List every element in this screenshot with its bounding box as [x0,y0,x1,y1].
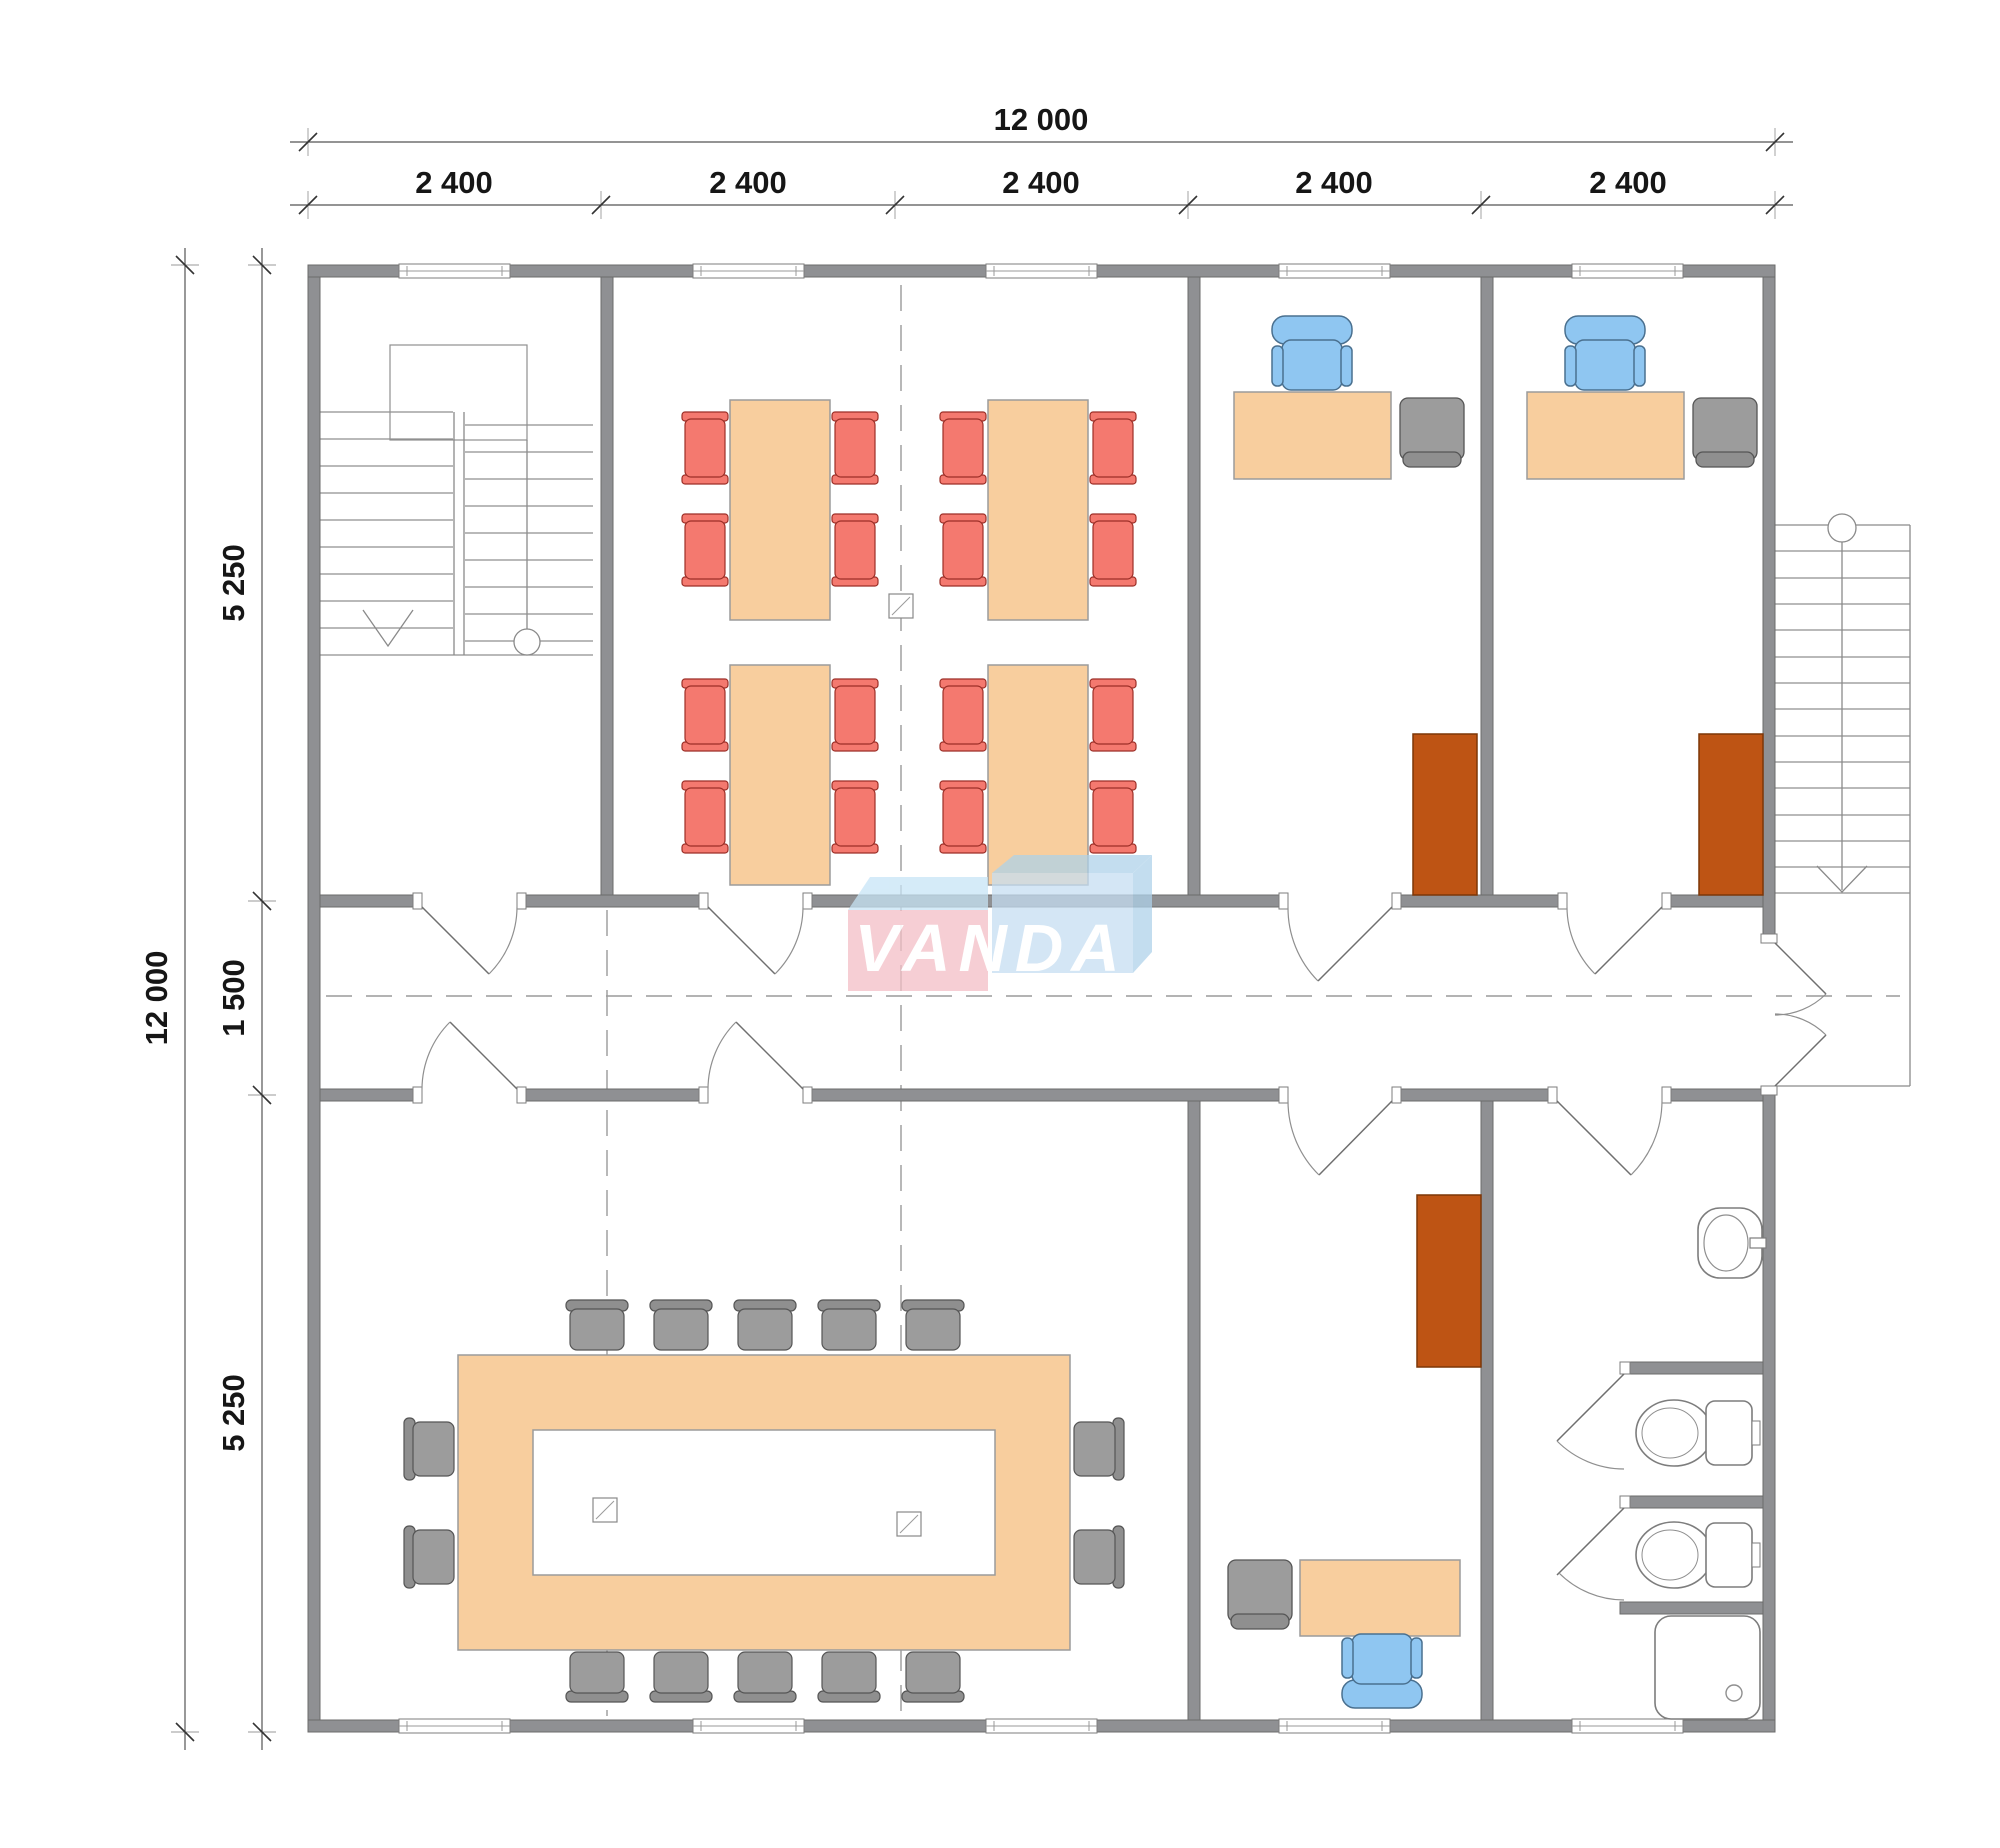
red-chair [940,679,986,751]
window [399,1719,510,1733]
window [693,1719,804,1733]
desk [1234,392,1391,479]
door-office2 [1558,893,1671,974]
cabinet [1417,1195,1481,1367]
column-symbol [593,1498,617,1522]
column-symbol [889,594,913,618]
blue-task-chair [1342,1634,1422,1708]
red-chair [682,679,728,751]
dim-label: 5 250 [216,544,251,622]
logo-box-blue-top [992,855,1152,873]
gray-chair [734,1300,796,1350]
blue-task-chair [1272,316,1352,390]
door-conference-west [413,1022,526,1103]
gray-chair [404,1418,454,1480]
classroom-table [730,665,830,885]
dim-label: 2 400 [709,165,787,200]
gray-chair [818,1652,880,1702]
door-office1 [1279,893,1401,981]
door-stairwell [413,893,526,974]
logo-box-pink-top [848,877,988,910]
gray-chair [566,1652,628,1702]
vanda-logo: VANDA [848,855,1152,991]
red-chair [682,412,728,484]
red-chair [832,514,878,586]
desk [1300,1560,1460,1636]
cabinet [1699,734,1763,895]
dim-left-total: 12 000 [139,248,199,1750]
dim-label: 2 400 [1002,165,1080,200]
classroom-table [988,665,1088,885]
door-bathroom [1548,1087,1671,1175]
dim-top-segments: 2 400 2 400 2 400 2 400 2 400 [290,165,1793,219]
door-conference-east [699,1022,812,1103]
internal-stairwell [320,345,593,655]
gray-guest-chair [1228,1560,1292,1629]
wall-right-lower [1763,1086,1775,1732]
gray-chair [650,1652,712,1702]
window [1279,1719,1390,1733]
office-top-2 [1527,316,1763,895]
red-chair [682,781,728,853]
wall-stairwell-classroom [601,277,613,895]
wall-left [308,265,320,1732]
column-symbol [897,1512,921,1536]
red-chair [1090,514,1136,586]
dim-label: 12 000 [994,102,1089,137]
red-chair [940,412,986,484]
floor-plan-drawing: VANDA 12 000 2 400 2 400 2 400 2 400 2 4… [0,0,2000,1848]
external-staircase [1775,514,1910,1086]
dim-label: 2 400 [415,165,493,200]
gray-guest-chair [1400,398,1464,467]
red-chair [1090,412,1136,484]
dim-label: 5 250 [216,1374,251,1452]
wall-office3-bathroom [1481,1101,1493,1720]
red-chair [682,514,728,586]
logo-text: VANDA [854,911,1127,986]
door-office3 [1279,1087,1401,1175]
office-bottom [1228,1195,1481,1708]
classroom [682,400,1136,885]
gray-guest-chair [1693,398,1757,467]
red-chair [1090,781,1136,853]
stair-start-marker [1828,514,1856,542]
dim-top-total: 12 000 [290,102,1793,156]
door-stall1 [1557,1362,1630,1469]
office-top-1 [1234,316,1477,895]
wall-right-upper [1763,265,1775,943]
gray-chair [404,1526,454,1588]
window [986,264,1097,278]
red-chair [832,412,878,484]
cabinet [1413,734,1477,895]
stair-start-marker [514,629,540,655]
toilet [1636,1400,1760,1466]
window [399,264,510,278]
door-classroom [699,893,812,974]
blue-task-chair [1565,316,1645,390]
gray-chair [902,1300,964,1350]
gray-chair [734,1652,796,1702]
gray-chair [650,1300,712,1350]
classroom-table [730,400,830,620]
window [986,1719,1097,1733]
wall-corridor-bottom [320,1089,1763,1101]
gray-chair [1074,1526,1124,1588]
floor-plan-canvas: VANDA 12 000 2 400 2 400 2 400 2 400 2 4… [0,0,2000,1848]
red-chair [832,781,878,853]
wall-stall2-bottom [1620,1602,1763,1614]
wall-conference-office3 [1188,1101,1200,1720]
wall-stall-mid [1620,1496,1763,1508]
red-chair [1090,679,1136,751]
wall-classroom-office1 [1188,277,1200,895]
dim-label: 2 400 [1589,165,1667,200]
gray-chair [566,1300,628,1350]
bathroom [1636,1208,1766,1719]
door-stall2 [1557,1496,1630,1600]
dim-label: 2 400 [1295,165,1373,200]
red-chair [940,781,986,853]
window [693,264,804,278]
gray-chair [818,1300,880,1350]
dim-left-segments: 5 250 1 500 5 250 [216,248,276,1750]
door-corridor-exit [1761,934,1826,1095]
window [1572,1719,1683,1733]
desk [1527,392,1684,479]
red-chair [940,514,986,586]
classroom-table [988,400,1088,620]
gray-chair [902,1652,964,1702]
red-chair [832,679,878,751]
dim-label: 12 000 [139,951,174,1046]
window [1572,264,1683,278]
gray-chair [1074,1418,1124,1480]
logo-box-blue-side [1133,855,1152,973]
shower-tray [1655,1616,1760,1719]
window [1279,264,1390,278]
dim-label: 1 500 [216,959,251,1037]
toilet [1636,1522,1760,1588]
wall-stall1-top [1620,1362,1763,1374]
wall-office1-office2 [1481,277,1493,895]
internal-stair-treads [320,412,593,655]
sink [1698,1208,1766,1278]
conference-room [404,1300,1124,1702]
